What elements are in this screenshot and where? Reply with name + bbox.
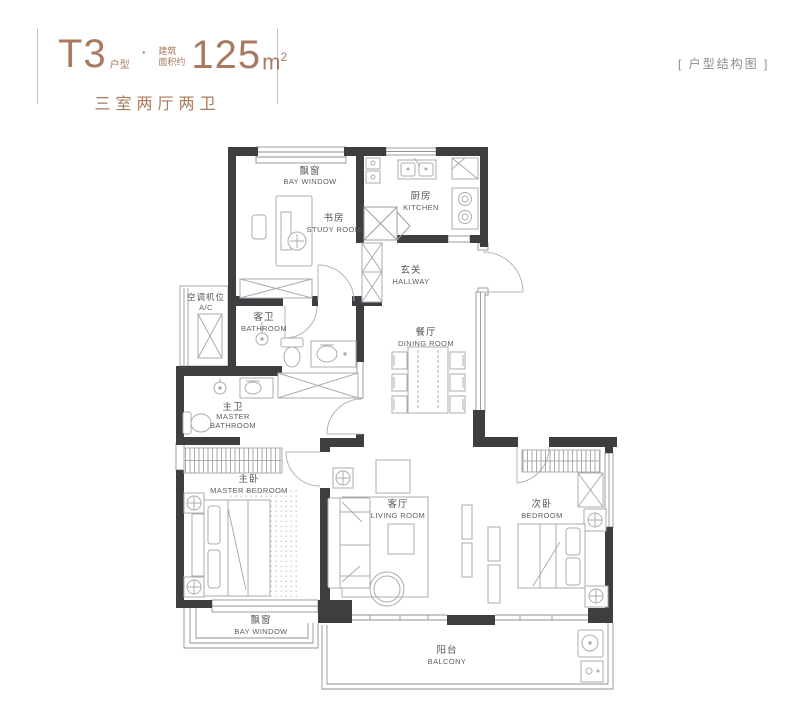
title-separator-dot: ·	[142, 44, 147, 60]
label-balcony-en: BALCONY	[428, 657, 467, 666]
label-bedroom-en: BEDROOM	[521, 511, 563, 520]
balcony-sliding-door	[352, 615, 447, 620]
label-study-en: STUDY ROOM	[307, 225, 362, 234]
fridge	[452, 158, 478, 179]
stove	[452, 188, 478, 229]
label-ac-zh: 空调机位	[187, 292, 225, 302]
coffee-table	[388, 524, 414, 554]
label-hallway-zh: 玄关	[400, 264, 421, 276]
master-bedroom-window	[176, 443, 184, 470]
laundry-sink	[581, 661, 603, 682]
kitchen-sink	[398, 158, 436, 179]
label-dining-zh: 餐厅	[415, 326, 436, 338]
label-bay-top-en: BAY WINDOW	[283, 177, 337, 186]
ac-unit	[198, 314, 222, 358]
label-study-zh: 书房	[323, 212, 344, 224]
master-wardrobe	[184, 448, 282, 473]
washing-machine	[578, 630, 603, 657]
label-bay-bottom-zh: 飘窗	[250, 614, 271, 626]
unit-title: T3 户型 · 建筑 面积约 125 m2	[58, 34, 287, 74]
label-kitchen-en: KITCHEN	[403, 203, 439, 212]
study-closet	[240, 279, 312, 298]
sofa	[328, 498, 370, 588]
label-bathroom-en: BATHROOM	[241, 324, 287, 333]
floor-lamp	[333, 468, 353, 488]
label-bathroom-zh: 客卫	[253, 311, 274, 323]
corner-note: [ 户型结构图 ]	[678, 55, 769, 72]
layout-summary: 三室两厅两卫	[37, 90, 278, 114]
label-kitchen-zh: 厨房	[410, 190, 431, 202]
bedroom-balcony-window	[495, 615, 588, 620]
floorplan-page: T3 户型 · 建筑 面积约 125 m2 三室两厅两卫 [ 户型结构图 ]	[0, 0, 800, 725]
suite-closet	[278, 373, 358, 398]
label-bay-top-zh: 飘窗	[299, 165, 320, 177]
kitchen-sill	[448, 236, 470, 242]
label-master-bed-zh: 主卧	[238, 473, 259, 485]
area-value: 125	[191, 36, 261, 74]
kitchen-cabinet	[366, 158, 380, 183]
dining-set	[392, 347, 465, 413]
kitchen-window	[386, 148, 436, 155]
console-table	[376, 460, 410, 493]
master-bed	[184, 493, 270, 597]
balcony-parapet	[322, 623, 613, 689]
dining-window-wall	[476, 292, 485, 412]
master-bedroom-door	[286, 452, 320, 486]
bedroom-wardrobe	[522, 450, 600, 472]
bathroom-door	[285, 306, 317, 338]
bedroom-closet	[578, 473, 603, 507]
bedroom-bed	[518, 509, 608, 607]
label-master-bed-en: MASTER BEDROOM	[210, 486, 288, 495]
bay-window-top-glazing	[256, 147, 346, 163]
master-suite-door	[327, 399, 362, 434]
pouf	[370, 572, 404, 606]
tv-console	[462, 505, 472, 577]
label-master-bath-en1: MASTER	[216, 412, 250, 421]
label-balcony-zh: 阳台	[436, 644, 457, 656]
label-hallway-en: HALLWAY	[392, 277, 429, 286]
study-desk	[252, 196, 312, 266]
hallway-closet	[362, 243, 382, 302]
label-living-en: LIVING ROOM	[371, 511, 425, 520]
study-door	[318, 265, 354, 301]
label-dining-en: DINING ROOM	[398, 339, 454, 348]
label-living-zh: 客厅	[387, 498, 408, 510]
entry-door	[483, 252, 523, 292]
bedroom-dresser	[488, 527, 500, 603]
unit-type-code: T3	[58, 34, 107, 74]
label-master-bath-en2: BATHROOM	[210, 421, 256, 430]
unit-type-label: 户型	[110, 56, 130, 71]
area-unit: m2	[262, 46, 287, 73]
label-bay-bottom-en: BAY WINDOW	[234, 627, 288, 636]
label-ac-en: A/C	[199, 303, 213, 312]
label-bedroom-zh: 次卧	[531, 498, 552, 510]
area-prefix: 建筑 面积约	[158, 46, 185, 68]
